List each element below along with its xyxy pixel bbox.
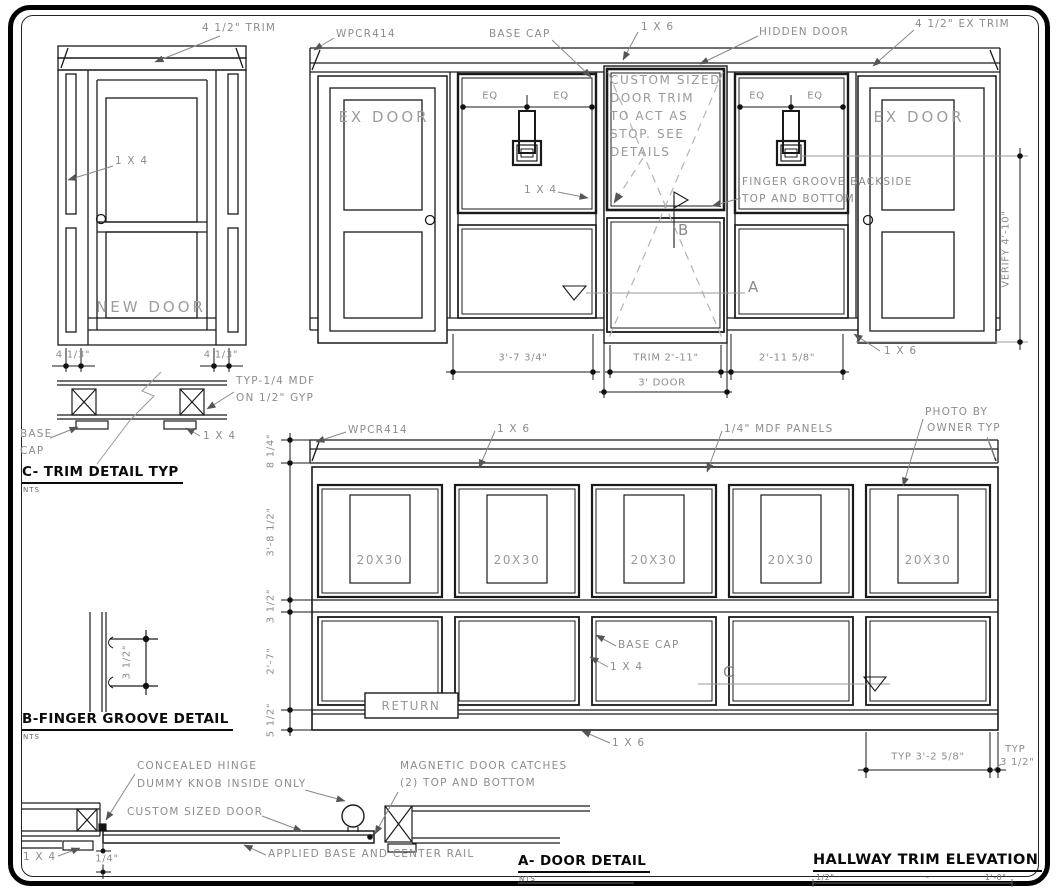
lower-elevation-left-dims: [281, 433, 312, 736]
dim-verify: VERIFY 4'-10": [1001, 210, 1012, 287]
return-label: RETURN: [382, 699, 441, 713]
title-scale-bars: [518, 879, 1012, 887]
lower-stile-label: 1 X 4: [610, 661, 643, 673]
mdf-note-2: ON 1/2" GYP: [236, 392, 314, 404]
dim-door: 3' DOOR: [638, 378, 686, 389]
dim-typ-stile-2: 3 1/2": [1000, 757, 1034, 768]
upper-base-board-label: 1 X 6: [884, 345, 917, 357]
photo-note-1: PHOTO BY: [925, 406, 988, 418]
upper-panel-board-label: 1 X 4: [524, 184, 557, 196]
photo-size-label: 20X30: [494, 553, 541, 567]
mdf-panels-label: 1/4" MDF PANELS: [724, 423, 833, 435]
lower-dim-panel: 3'-8 1/2": [266, 507, 277, 556]
trim-detail-break-line: [97, 372, 161, 464]
eq-label: EQ: [807, 91, 823, 102]
trim-board-label: 1 X 4: [203, 430, 236, 442]
photo-size-label: 20X30: [357, 553, 404, 567]
ex-door-left-label: EX DOOR: [338, 108, 429, 126]
lower-base-cap-label: BASE CAP: [618, 639, 679, 651]
lower-base-board-label: 1 X 6: [612, 737, 645, 749]
trim-detail-section: [57, 381, 227, 429]
eq-label: EQ: [749, 91, 765, 102]
new-door-dim-left: 4 1/3": [56, 350, 90, 361]
dim-panel-left: 3'-7 3/4": [498, 353, 547, 364]
custom-note-line: DOOR TRIM: [610, 91, 694, 105]
door-detail-title: A- DOOR DETAIL: [518, 853, 650, 873]
dim-panel-right: 2'-11 5/8": [759, 353, 815, 364]
eq-label: EQ: [553, 91, 569, 102]
door-detail-scale: NTS: [519, 875, 536, 883]
dim-trim: TRIM 2'-11": [633, 353, 699, 364]
lower-crown-label: WPCR414: [348, 424, 408, 436]
dim-typ-stile-1: TYP: [1005, 744, 1025, 755]
upper-crown-label: WPCR414: [336, 28, 396, 40]
custom-note-line: DETAILS: [610, 145, 670, 159]
catches-label-1: MAGNETIC DOOR CATCHES: [400, 760, 567, 772]
trim-detail-scale: NTS: [23, 486, 40, 494]
ex-door-right-label: EX DOOR: [873, 108, 964, 126]
new-door-stile-label: 1 X 4: [115, 155, 148, 167]
new-door-elevation: [52, 46, 246, 372]
photo-size-label: 20X30: [631, 553, 678, 567]
lower-dim-rail: 3 1/2": [266, 589, 277, 623]
door-detail-board-label: 1 X 4: [23, 851, 56, 863]
photo-note-2: OWNER TYP: [927, 422, 1001, 434]
knob-label: DUMMY KNOB INSIDE ONLY: [137, 778, 306, 790]
lower-dim-base: 5 1/2": [266, 703, 277, 737]
ex-trim-label: 4 1/2" EX TRIM: [915, 18, 1010, 30]
photo-size-label: 20X30: [905, 553, 952, 567]
hidden-door-label: HIDDEN DOOR: [759, 26, 849, 38]
section-marker-c: C: [723, 663, 733, 681]
finger-groove-dim: 3 1/2": [122, 645, 133, 679]
finger-groove-scale: NTS: [23, 733, 40, 741]
trim-base-cap-1: BASE: [20, 428, 53, 440]
door-detail-plan: [22, 803, 590, 879]
lower-elevation: [310, 440, 998, 730]
hinge-label: CONCEALED HINGE: [137, 760, 257, 772]
custom-door-label: CUSTOM SIZED DOOR: [127, 806, 263, 818]
mdf-note-1: TYP-1/4 MDF: [236, 375, 315, 387]
sheet-title: HALLWAY TRIM ELEVATION: [813, 852, 1042, 872]
section-marker-b: B: [678, 221, 688, 239]
applied-base-label: APPLIED BASE AND CENTER RAIL: [268, 848, 474, 860]
lower-dim-crown: 8 1/4": [266, 434, 277, 468]
scale-dash: -: [926, 873, 929, 882]
photo-size-label: 20X30: [768, 553, 815, 567]
trim-base-cap-2: CAP: [20, 445, 44, 457]
catches-label-2: (2) TOP AND BOTTOM: [400, 777, 536, 789]
upper-base-cap-label: BASE CAP: [489, 28, 550, 40]
new-door-name: NEW DOOR: [96, 298, 206, 316]
new-door-trim-label: 4 1/2" TRIM: [202, 22, 276, 34]
trim-detail-title: C- TRIM DETAIL TYP: [22, 464, 183, 484]
new-door-dim-right: 4 1/3": [204, 350, 238, 361]
custom-note-line: CUSTOM SIZED: [610, 73, 721, 87]
custom-note-line: STOP. SEE: [610, 127, 685, 141]
eq-label: EQ: [482, 91, 498, 102]
door-gap-dim: 1/4": [93, 854, 121, 865]
finger-groove-note-1: FINGER GROOVE BACKSIDE: [742, 176, 913, 188]
lower-board-label: 1 X 6: [497, 423, 530, 435]
finger-groove-note-2: TOP AND BOTTOM: [742, 193, 855, 205]
custom-note-line: TO ACT AS: [610, 109, 688, 123]
upper-board-label: 1 X 6: [641, 21, 674, 33]
scale-right: 1'-0": [985, 873, 1006, 882]
finger-groove-title: B-FINGER GROOVE DETAIL: [22, 711, 233, 731]
section-marker-a: A: [748, 278, 758, 296]
dim-typ-panel: TYP 3'-2 5/8": [891, 752, 964, 763]
scale-left: 1/2": [816, 873, 835, 882]
lower-dim-wainscot: 2'-7": [266, 647, 277, 674]
